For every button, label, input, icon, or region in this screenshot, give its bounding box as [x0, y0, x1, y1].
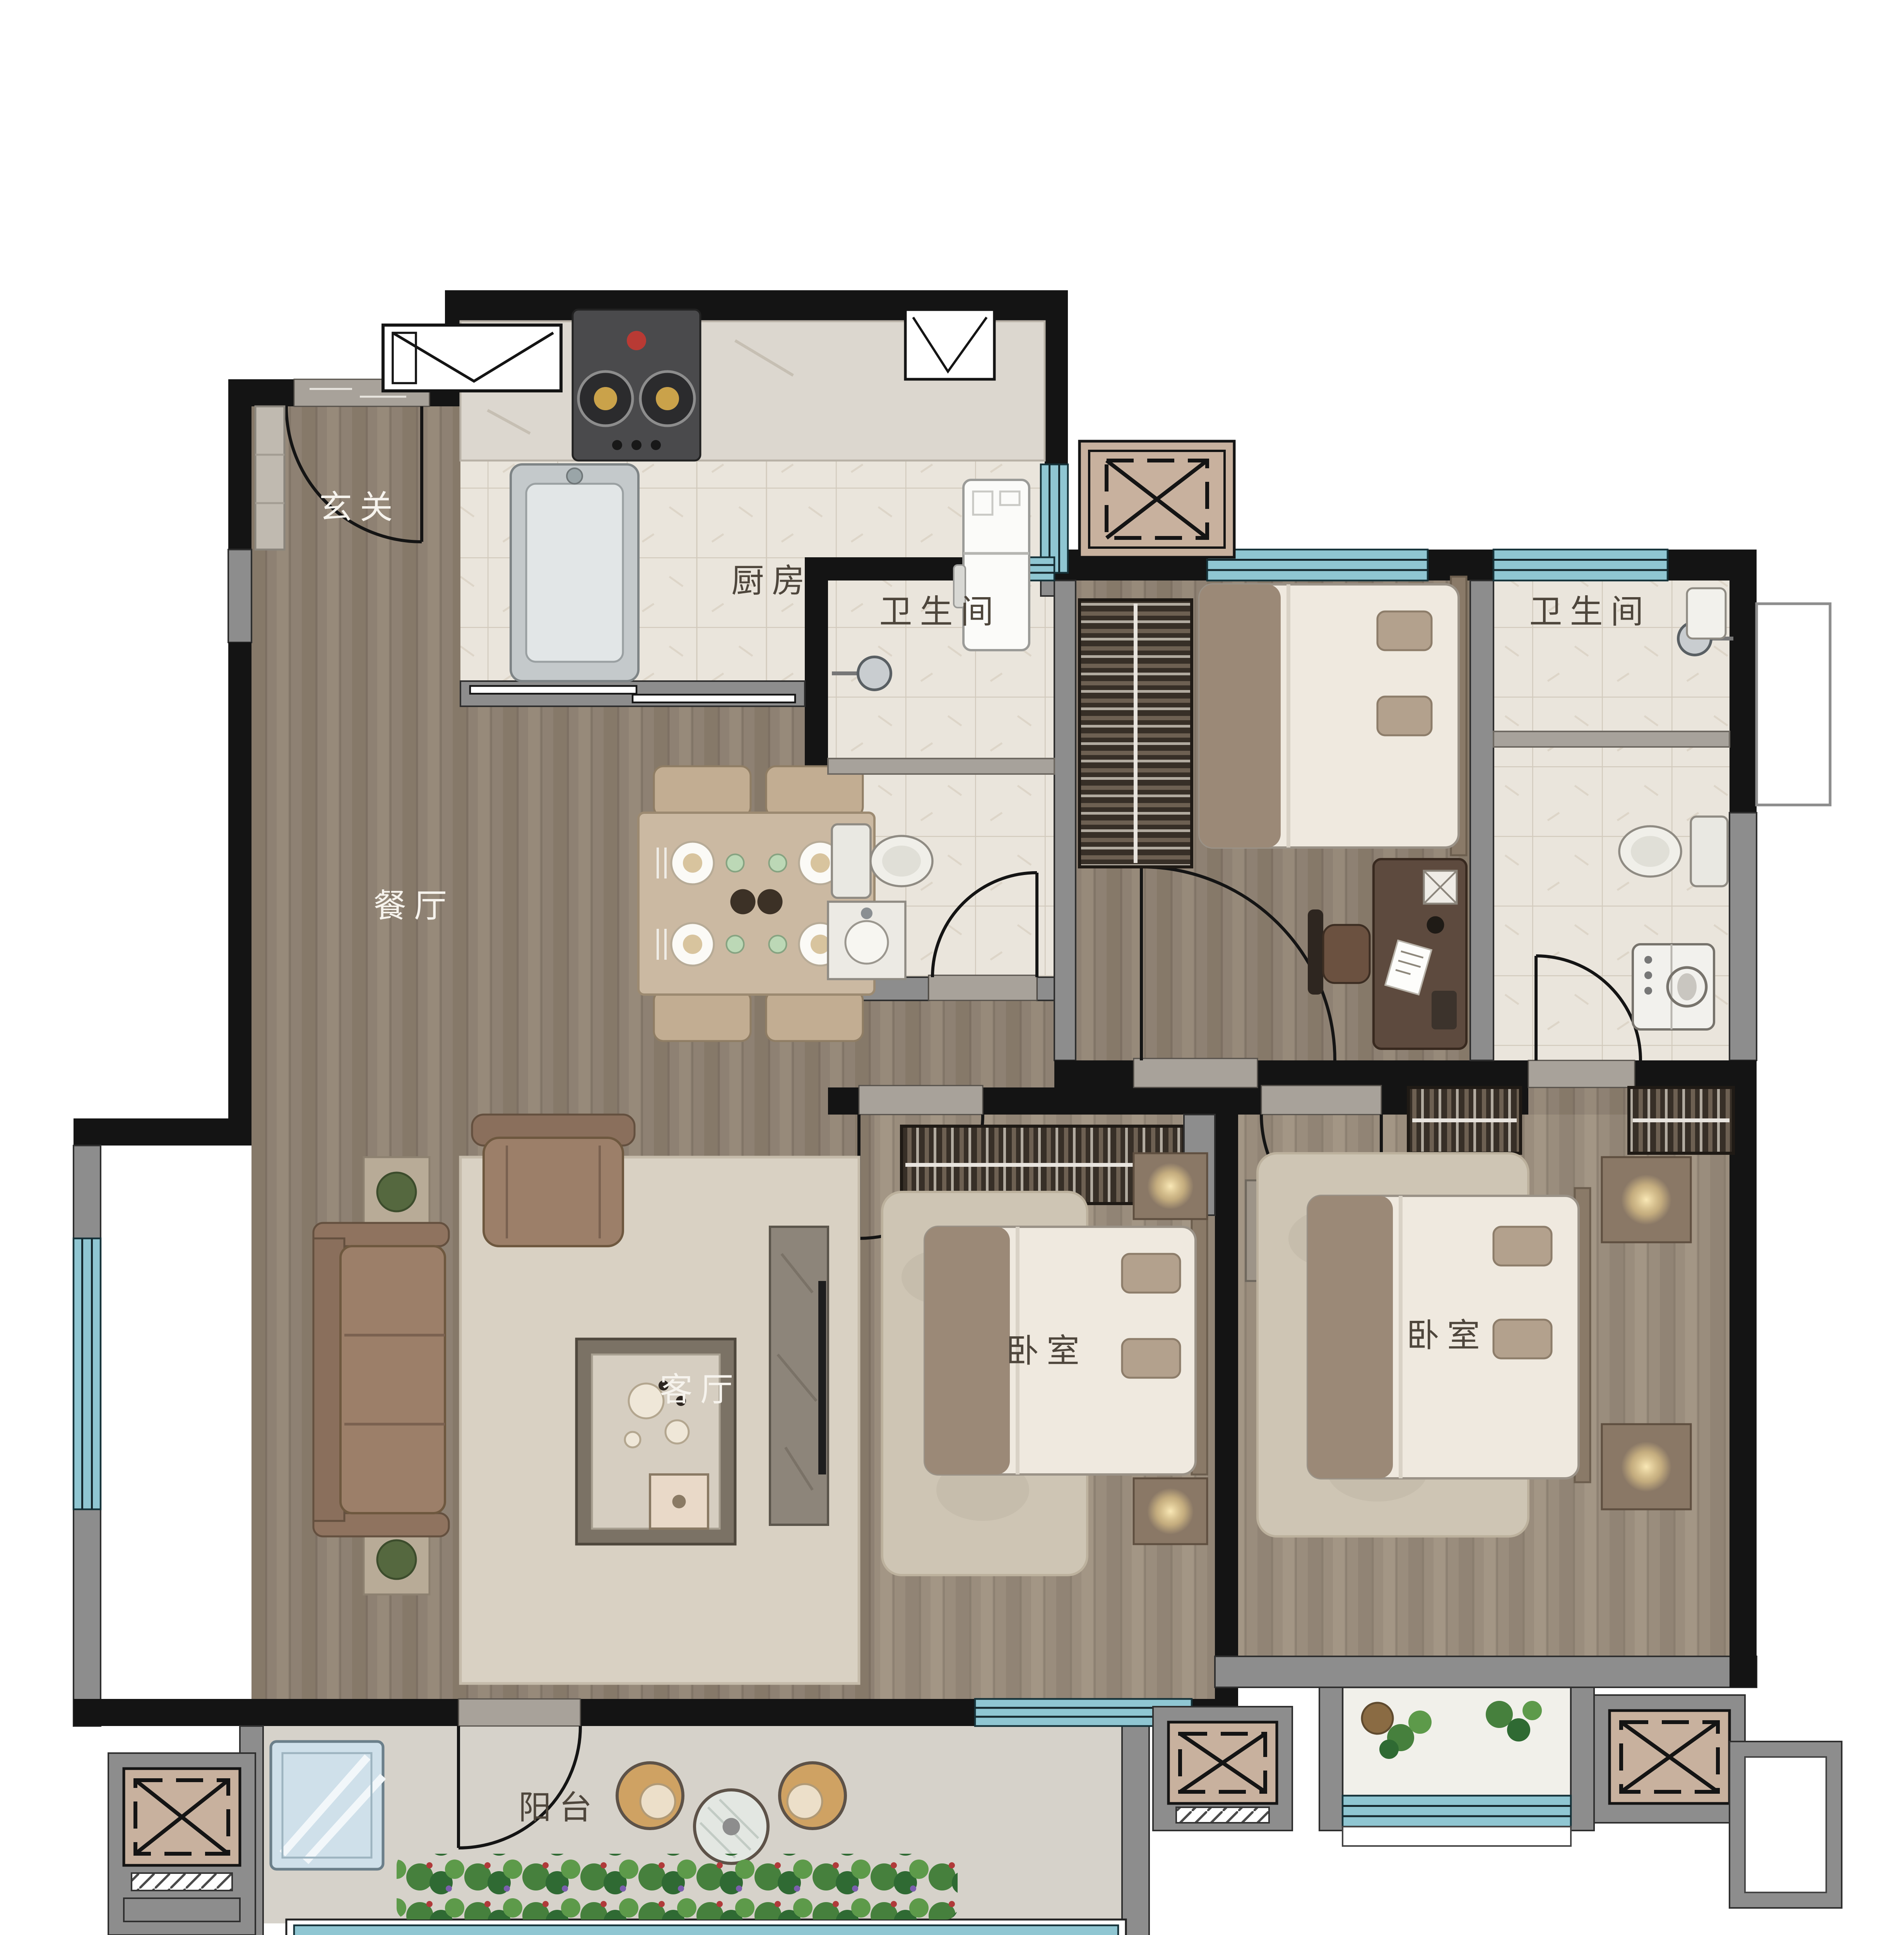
armchair-icon [472, 1115, 635, 1246]
bath2-sink [1687, 588, 1726, 639]
window-planter-bay [1343, 1796, 1571, 1846]
casement-window-2-icon [905, 310, 994, 379]
pillow [1493, 1320, 1552, 1358]
window-bedroomA-top [1207, 550, 1428, 580]
kitchen-sink-icon [511, 464, 638, 681]
wardrobe-icon [1629, 1087, 1733, 1153]
pillow [1493, 1227, 1552, 1265]
kitchen-sliding-door [460, 681, 805, 706]
bed-icon [1199, 577, 1466, 855]
balcony-table-icon [695, 1790, 768, 1863]
room-label-bedroom-mid: 卧室 [1006, 1332, 1087, 1370]
dining-chair [654, 991, 751, 1041]
shower-head-icon [858, 657, 891, 690]
room-label-balcony: 阳台 [518, 1789, 600, 1827]
room-label-bath2: 卫生间 [1529, 593, 1651, 631]
pillow [1377, 697, 1432, 735]
ac-platform-right-icon [1594, 1695, 1842, 1908]
pillow [1122, 1339, 1180, 1378]
shower-partition [1493, 731, 1730, 747]
room-label-foyer: 玄关 [319, 488, 400, 527]
ac-platform-mid-icon [1153, 1707, 1292, 1831]
window-balcony-long [267, 1920, 1145, 1935]
washing-machine-icon [1633, 944, 1714, 1029]
water-heater-icon [271, 1741, 383, 1869]
wardrobe-icon [1408, 1087, 1521, 1153]
nightstand-icon [1602, 1424, 1691, 1509]
room-label-dining: 餐厅 [373, 887, 455, 925]
sofa-icon [313, 1223, 449, 1536]
room-label-kitchen: 厨房 [731, 562, 813, 600]
vanity-sink-icon [828, 902, 905, 979]
pillow [1122, 1254, 1180, 1293]
dining-chair [654, 766, 751, 817]
pillow [1377, 611, 1432, 650]
casement-window-icon [383, 325, 561, 391]
desk-icon [1374, 859, 1466, 1049]
ac-platform-left-icon [108, 1753, 255, 1935]
room-label-bath1: 卫生间 [879, 593, 1001, 631]
wardrobe-icon [1079, 600, 1192, 867]
shower-partition [828, 759, 1054, 774]
nightstand-icon [1602, 1157, 1691, 1242]
lounge-chair-icon [780, 1763, 845, 1829]
window-bath2-top [1493, 550, 1668, 580]
room-label-bedroom-right: 卧室 [1406, 1317, 1488, 1355]
exterior-ledge-right [1757, 604, 1830, 805]
floor-plan: 玄关 厨房 餐厅 卫生间 卫生间 客厅 卧室 卧室 阳台 [0, 0, 1904, 1935]
window-living-left [74, 1238, 101, 1509]
nightstand-icon [1134, 1478, 1207, 1544]
room-label-living: 客厅 [660, 1371, 741, 1409]
lounge-chair-icon [617, 1763, 683, 1829]
shoe-cabinet [255, 406, 284, 550]
side-table-icon [364, 1157, 429, 1227]
nightstand-icon [1134, 1153, 1207, 1219]
ac-platform-top-icon [1079, 441, 1234, 557]
tv-stand-icon [770, 1227, 828, 1525]
flower-bed [397, 1854, 958, 1920]
foyer-furniture [255, 406, 284, 550]
stove-icon [573, 310, 700, 461]
coffee-table-icon [577, 1339, 735, 1544]
dining-chair [766, 991, 863, 1041]
